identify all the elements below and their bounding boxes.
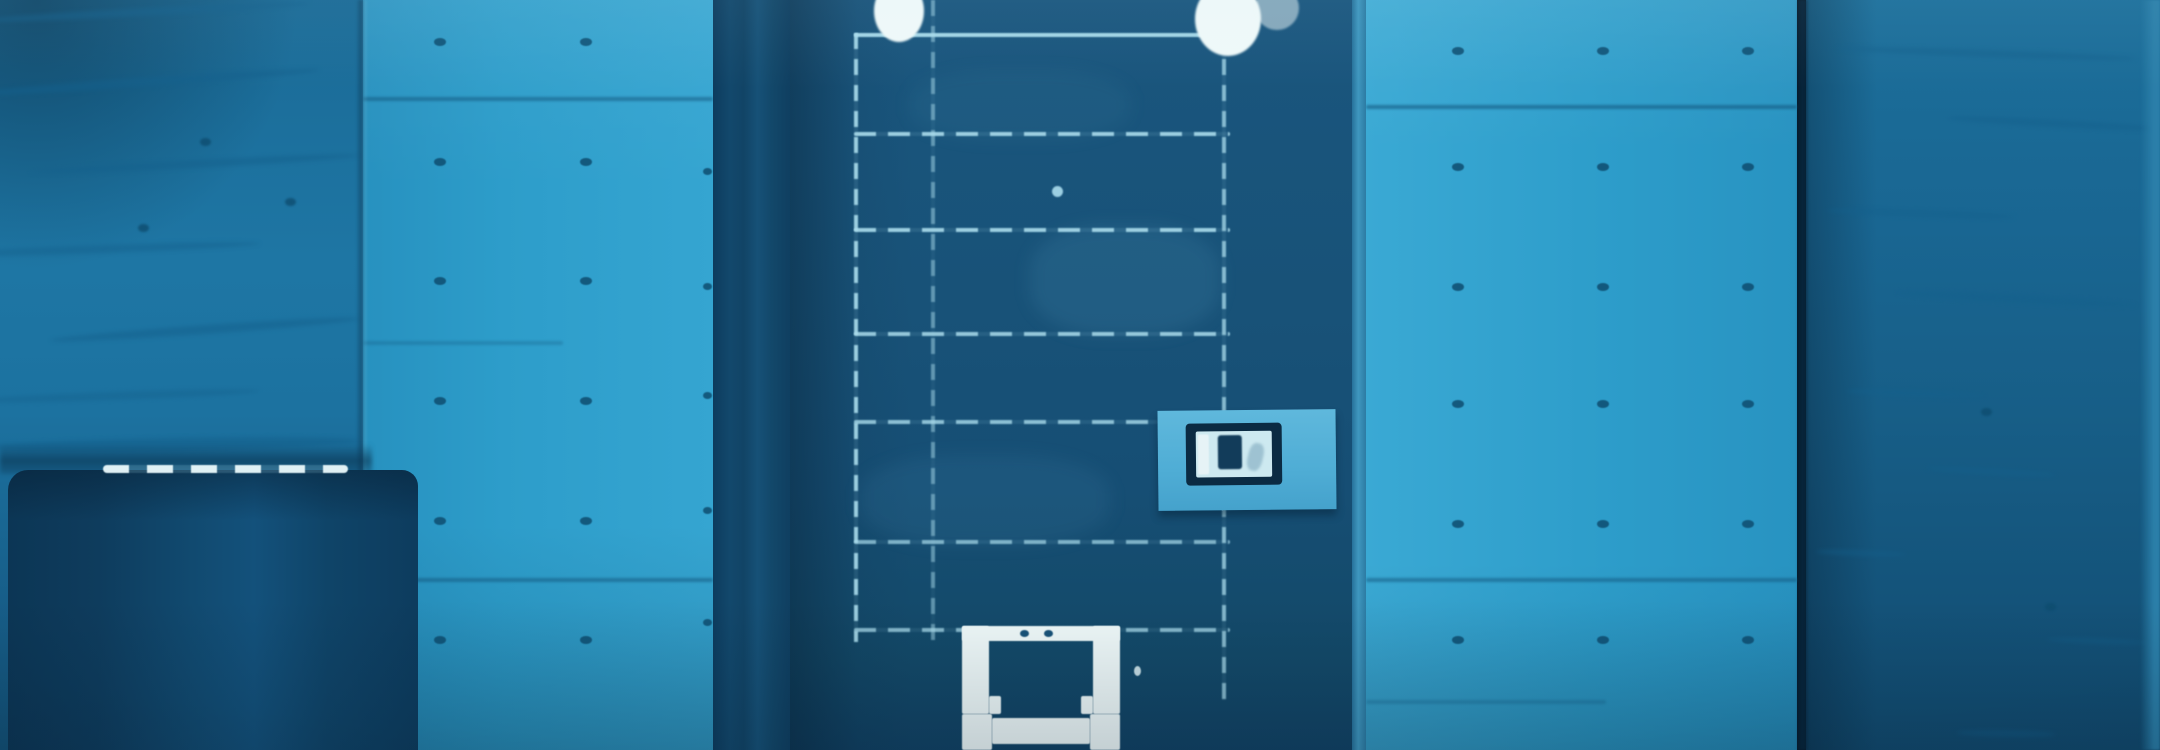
name-plate (1157, 409, 1336, 511)
wall-joint-line (363, 97, 713, 101)
door-surface-sheen (860, 455, 1110, 545)
door-paint-chip (1134, 666, 1141, 676)
tie-hole (703, 619, 712, 626)
plate-frame (1186, 423, 1283, 486)
hatch-leg-right (1090, 714, 1120, 750)
plate-card-shine (1198, 434, 1209, 474)
tie-hole (434, 517, 446, 525)
wall-streak (1896, 289, 2136, 310)
wall-blemish (200, 138, 211, 146)
tie-hole (1742, 400, 1754, 408)
wall-streak (50, 314, 360, 345)
tie-hole (1452, 520, 1464, 528)
door-panel-line-vertical (854, 33, 858, 642)
wall-blemish (285, 198, 296, 206)
hatch-crossbar (992, 718, 1090, 744)
wall-corner-right (1797, 0, 1808, 750)
wall-joint-line (1366, 105, 1797, 109)
tie-hole (1742, 283, 1754, 291)
hatch-foot-right (1081, 696, 1093, 714)
tie-hole (1597, 520, 1609, 528)
white-object-top (1195, 0, 1261, 56)
right-textured-wall (1806, 0, 2160, 750)
tie-hole (703, 168, 712, 175)
tie-hole (1452, 283, 1464, 291)
door-panel-line-horizontal (854, 332, 1230, 336)
door-panel-line-horizontal (854, 420, 1158, 424)
hatch-foot-left (989, 696, 1001, 714)
door-surface-sheen (910, 70, 1130, 140)
tie-hole (1597, 47, 1609, 55)
wall-blemish (2045, 603, 2056, 611)
door-surface-sheen (1030, 225, 1220, 335)
door-panel-line-vertical (931, 0, 935, 640)
tie-hole (580, 38, 592, 46)
bin-top-highlight (103, 465, 348, 473)
right-wall-lit-sliver (2140, 0, 2160, 750)
wall-streak (1946, 114, 2160, 133)
wall-streak (1826, 207, 2016, 221)
door-panel-line-horizontal (854, 540, 1230, 544)
tie-hole (434, 277, 446, 285)
wall-streak (1926, 465, 2056, 479)
tie-hole (1452, 47, 1464, 55)
hatch-rivet (1044, 630, 1053, 637)
door-panel-line-horizontal (854, 132, 1230, 136)
wall-streak (0, 240, 260, 259)
plate-faint-mark (1245, 442, 1266, 473)
peephole-mark (1052, 186, 1063, 197)
tie-hole (434, 397, 446, 405)
tie-hole (434, 158, 446, 166)
wall-streak (1816, 548, 1906, 557)
plate-glyph (1218, 435, 1242, 469)
tie-hole (1597, 283, 1609, 291)
tie-hole (703, 392, 712, 399)
tie-hole (703, 283, 712, 290)
tie-hole (580, 636, 592, 644)
tie-hole (1452, 636, 1464, 644)
hatch-side-right (1093, 626, 1120, 714)
door-jamb-shadow (713, 0, 790, 750)
wall-joint-line (1366, 578, 1797, 582)
tie-hole (1452, 400, 1464, 408)
tie-hole (434, 636, 446, 644)
wall-streak (2046, 636, 2146, 645)
tie-hole (580, 158, 592, 166)
tie-hole (434, 38, 446, 46)
wall-blemish (1981, 408, 1992, 416)
wall-streak (0, 65, 320, 99)
tie-hole (703, 507, 712, 514)
cell-door (790, 0, 1352, 750)
right-concrete-wall (1366, 0, 1797, 750)
tie-hole (580, 517, 592, 525)
tie-hole (1742, 520, 1754, 528)
hatch-side-left (962, 626, 989, 714)
wall-streak (1846, 388, 1986, 400)
storage-bin (8, 470, 418, 750)
wall-streak (1956, 729, 2056, 738)
wall-blemish (138, 224, 149, 232)
door-panel-line-vertical (1222, 33, 1226, 700)
food-hatch (962, 626, 1120, 750)
wall-joint-line (363, 341, 563, 345)
door-panel-line-horizontal (854, 228, 1230, 232)
tie-hole (1742, 636, 1754, 644)
wall-streak (0, 387, 260, 405)
tie-hole (1742, 163, 1754, 171)
tie-hole (1597, 400, 1609, 408)
tie-hole (1742, 47, 1754, 55)
corridor-photo (0, 0, 2160, 750)
white-object-top (1255, 0, 1299, 30)
wall-streak (30, 151, 360, 176)
tie-hole (580, 397, 592, 405)
wall-streak (0, 0, 310, 25)
hatch-leg-left (962, 714, 992, 750)
plate-card (1196, 431, 1272, 478)
tie-hole (580, 277, 592, 285)
tie-hole (1597, 163, 1609, 171)
tie-hole (1597, 636, 1609, 644)
hatch-rivet (1020, 630, 1029, 637)
wall-streak (1836, 45, 2136, 62)
tie-hole (1452, 163, 1464, 171)
wall-joint-line (1366, 700, 1606, 704)
door-lit-edge (1352, 0, 1366, 750)
